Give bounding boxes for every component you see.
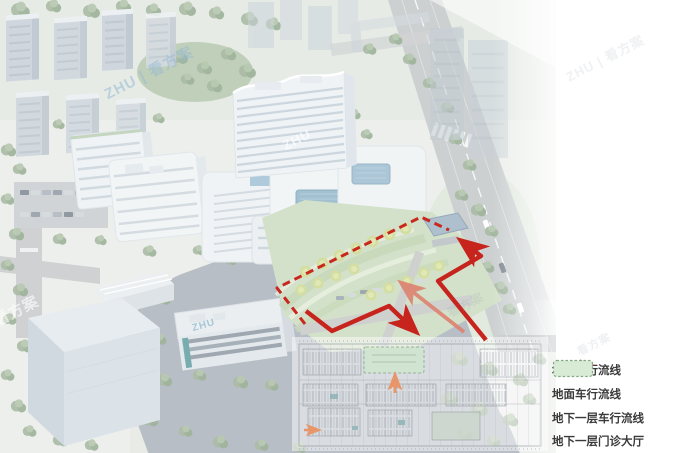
white-veil [0,0,560,453]
flow-legend: 地面人行流线 地面车行流线 地下一层车行流线 地下一层门诊大厅 [552,359,688,453]
hospital-site-circulation-diagram: ZHU | 看方案 ZHU ZHU | 看方案 看方案 ZHU 看方案 看方案 … [0,0,688,453]
legend-label: 地面车行流线 [552,386,621,402]
legend-item-underground-hall: 地下一层门诊大厅 [552,431,688,451]
green-area-swatch [552,359,594,378]
legend-label: 地下一层车行流线 [552,410,644,426]
legend-label: 地下一层门诊大厅 [552,433,644,449]
legend-item-ground-vehicle: 地面车行流线 [552,383,688,405]
legend-item-underground-vehicle: 地下一层车行流线 [552,407,688,429]
